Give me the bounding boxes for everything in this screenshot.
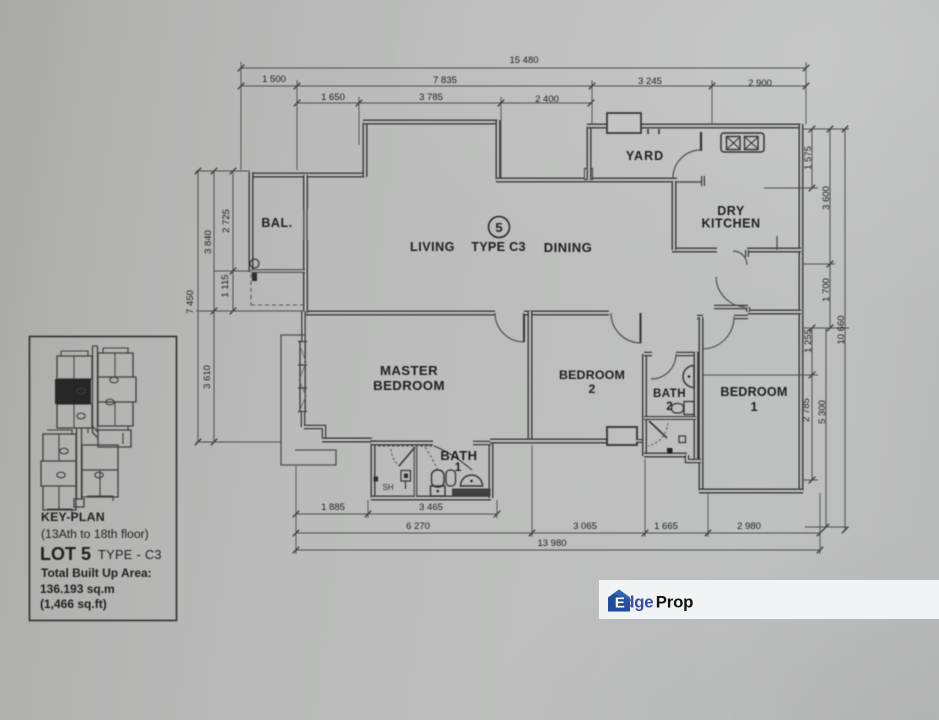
svg-text:Prop: Prop <box>656 593 693 612</box>
svg-text:dge: dge <box>624 593 653 612</box>
